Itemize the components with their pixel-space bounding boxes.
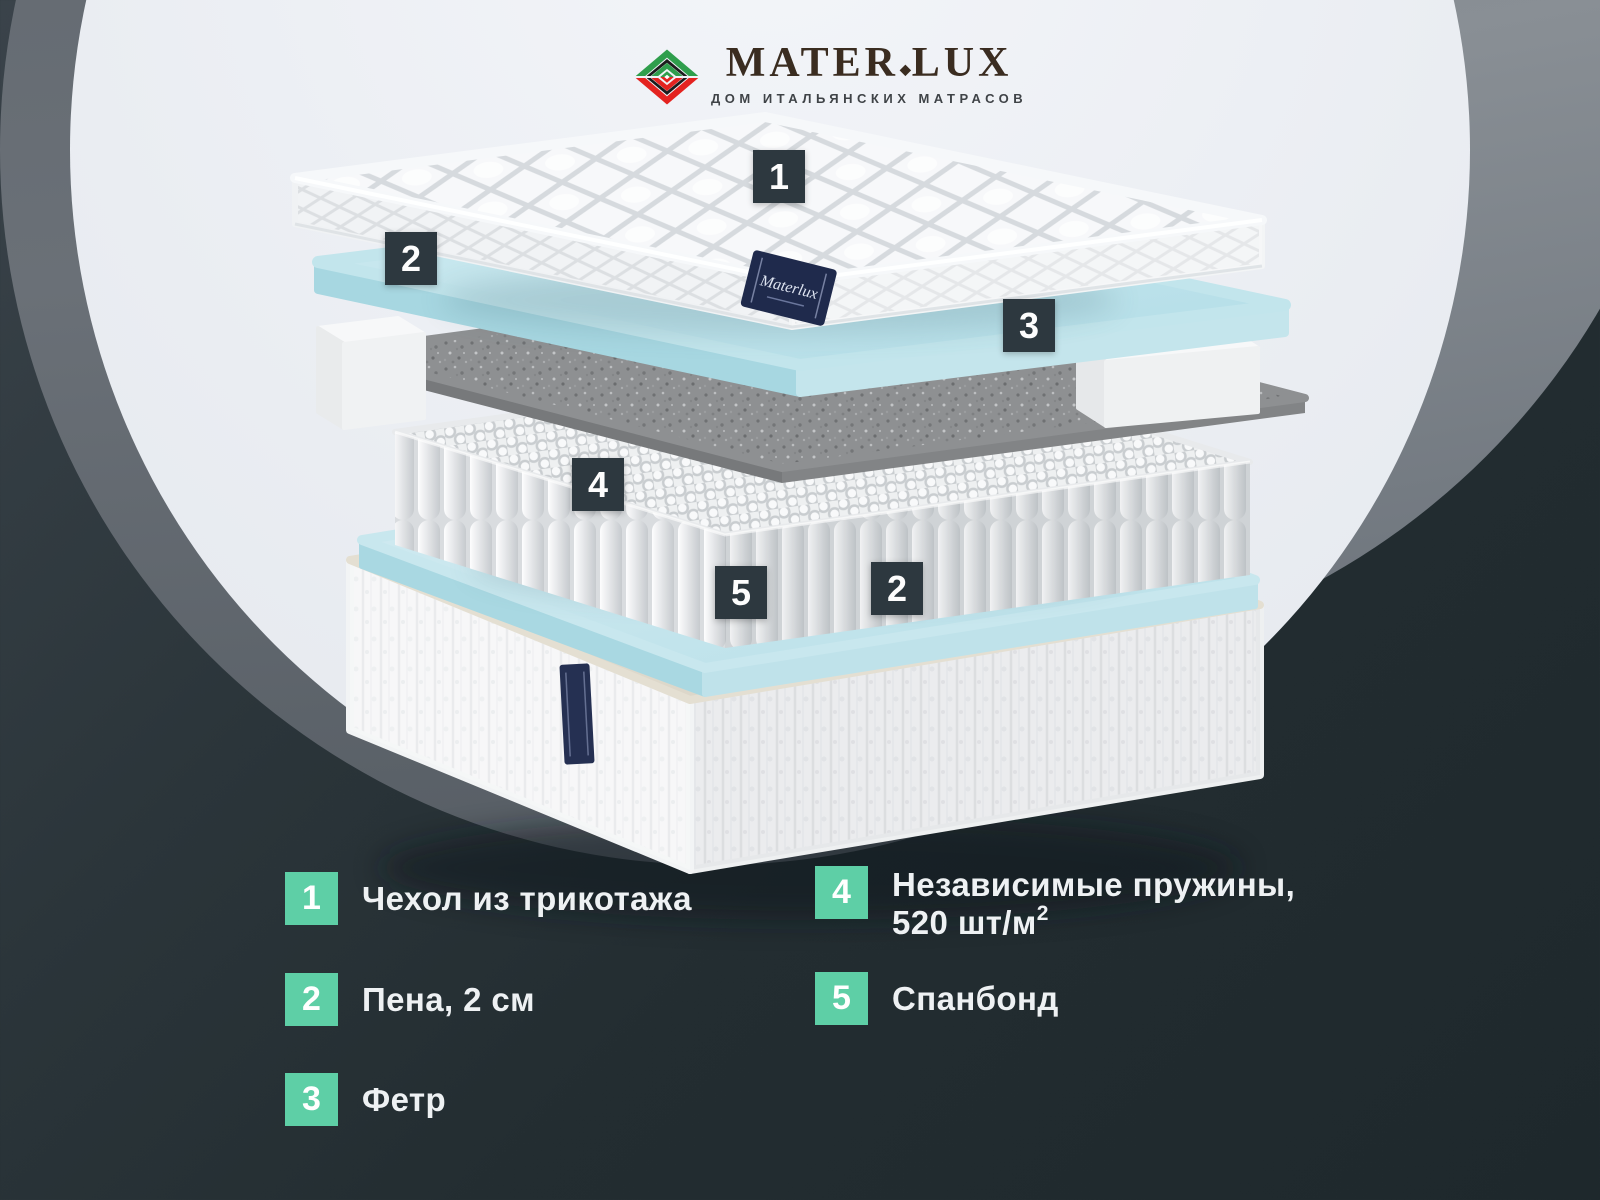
- legend-label: Спанбонд: [892, 980, 1059, 1018]
- legend-number-badge: 5: [815, 972, 868, 1025]
- callout-1-cover: 1: [753, 150, 805, 203]
- legend-item-spunbond: 5 Спанбонд: [815, 972, 1059, 1025]
- brand-wordmark: MATER◆LUX: [726, 42, 1013, 84]
- legend-number-badge: 3: [285, 1073, 338, 1126]
- legend-item-felt: 3 Фетр: [285, 1073, 446, 1126]
- legend-label: Фетр: [362, 1081, 446, 1119]
- legend-label: Чехол из трикотажа: [362, 880, 692, 918]
- corner-block-left: [318, 318, 424, 428]
- callout-4-springs: 4: [572, 458, 624, 511]
- legend-item-foam: 2 Пена, 2 см: [285, 973, 535, 1026]
- legend-item-springs: 4 Независимые пружины,520 шт/м2: [815, 866, 1295, 942]
- legend-number-badge: 1: [285, 872, 338, 925]
- brand-wordmark-separator: ◆: [900, 63, 911, 78]
- legend-label: Независимые пружины,520 шт/м2: [892, 866, 1295, 942]
- callout-2-foam-lower: 2: [871, 562, 923, 615]
- callout-3-felt: 3: [1003, 299, 1055, 352]
- legend-label-line2: 520 шт/м: [892, 904, 1037, 941]
- brand-subtitle: ДОМ ИТАЛЬЯНСКИХ МАТРАСОВ: [711, 91, 1027, 106]
- legend-number-badge: 2: [285, 973, 338, 1026]
- legend-item-cover: 1 Чехол из трикотажа: [285, 872, 692, 925]
- base-brand-tag: [559, 663, 594, 764]
- brand-wordmark-part2: LUX: [912, 40, 1013, 86]
- brand-wordmark-part1: MATER: [726, 40, 899, 86]
- legend-label-line1: Независимые пружины,: [892, 866, 1295, 903]
- brand-logo: MATER◆LUX ДОМ ИТАЛЬЯНСКИХ МАТРАСОВ: [633, 42, 1027, 110]
- legend-label: Пена, 2 см: [362, 981, 535, 1019]
- logo-diamond-icon: [633, 44, 701, 110]
- callout-2-foam-upper: 2: [385, 232, 437, 285]
- legend-number-badge: 4: [815, 866, 868, 919]
- callout-5-spunbond: 5: [715, 566, 767, 619]
- legend-label-superscript: 2: [1037, 902, 1049, 925]
